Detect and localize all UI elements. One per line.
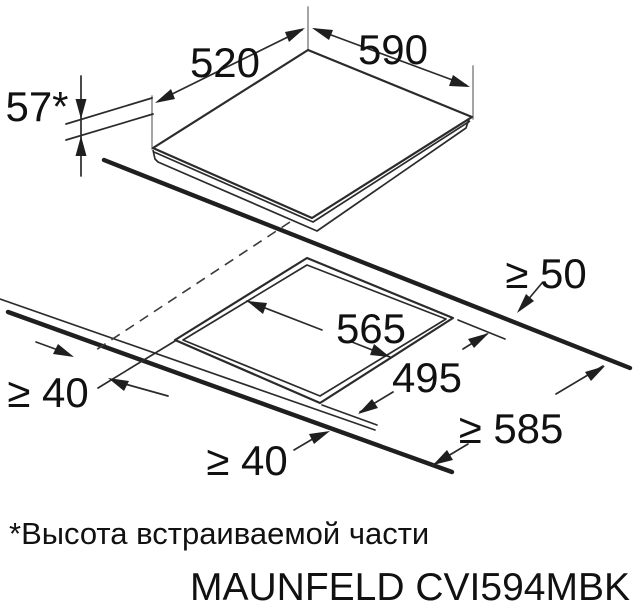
- label-clearance-left: ≥ 40: [7, 369, 88, 416]
- arrowhead-icon: [155, 89, 175, 103]
- dim-cooktop-width: 590: [312, 26, 470, 87]
- dim-clearance-left: ≥ 40: [7, 342, 168, 416]
- arrowhead-icon: [247, 301, 267, 314]
- arrowhead-icon: [358, 399, 378, 414]
- label-clearance-front: ≥ 40: [206, 437, 287, 484]
- label-worktop-min-width: ≥ 585: [459, 405, 564, 452]
- label-cooktop-depth: 520: [190, 39, 260, 86]
- installation-diagram-page: 520 590 57* ≥ 50: [0, 0, 642, 609]
- arrowhead-icon: [449, 75, 470, 87]
- dim-clearance-back: ≥ 50: [505, 250, 586, 313]
- arrowhead-icon: [285, 28, 305, 42]
- footnote-text: *Высота встраиваемой части: [9, 516, 429, 551]
- arrowhead-icon: [53, 344, 74, 357]
- dim-clearance-front: ≥ 40: [206, 431, 330, 484]
- dim-cutout-width: 565: [247, 301, 406, 357]
- arrowhead-icon: [108, 378, 129, 391]
- label-clearance-back: ≥ 50: [505, 250, 586, 297]
- arrowhead-icon: [312, 28, 333, 40]
- arrowhead-icon: [433, 450, 453, 465]
- arrowhead-icon: [585, 366, 605, 381]
- height-witness-lower: [66, 114, 153, 140]
- arrowhead-icon: [76, 136, 87, 156]
- arrowhead-icon: [468, 333, 489, 348]
- label-cutout-depth: 495: [392, 354, 462, 401]
- model-name: MAUNFELD CVI594MBK: [190, 566, 630, 609]
- label-built-in-height: 57*: [5, 83, 68, 130]
- arrowhead-icon: [309, 431, 330, 444]
- installation-diagram: 520 590 57* ≥ 50: [0, 0, 642, 609]
- arrowhead-icon: [76, 99, 87, 119]
- cooktop-glass-edge: [154, 121, 470, 222]
- label-cutout-width: 565: [336, 305, 406, 352]
- cooktop-body-edge: [153, 119, 469, 231]
- dim-built-in-height: 57*: [5, 76, 153, 176]
- label-cooktop-width: 590: [358, 26, 428, 73]
